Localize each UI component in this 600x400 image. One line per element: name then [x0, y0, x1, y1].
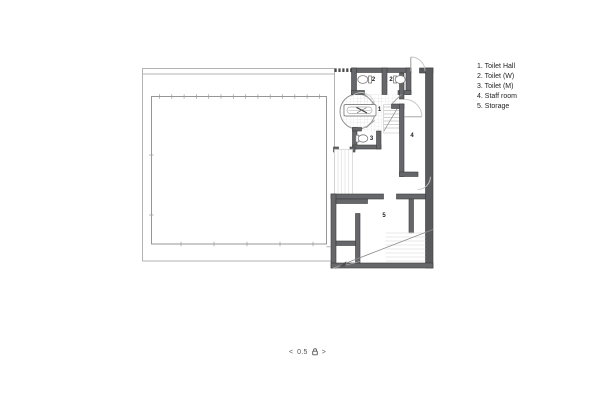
legend-item-storage: 5. Storage [477, 102, 517, 112]
lock-icon [312, 348, 318, 356]
legend-item-staff-room: 4. Staff room [477, 92, 517, 102]
legend: 1. Toilet Hall 2. Toilet (W) 3. Toilet (… [477, 62, 517, 112]
room-label-staff-room: 4 [410, 133, 413, 139]
room-label-toilet-w-right: 2 [389, 77, 392, 83]
floor-level-label: 0.5 [297, 349, 308, 356]
floor-plan-page: 1 2 2 3 4 5 1. Toilet Hall 2. Toilet (W)… [0, 0, 600, 400]
floor-pager: < 0.5 > [289, 348, 326, 356]
mullion-ticks [149, 94, 319, 246]
chevron-right-icon[interactable]: > [322, 349, 326, 356]
room-label-toilet-hall: 1 [378, 107, 381, 113]
floor-plan-drawing [0, 0, 600, 400]
legend-item-toilet-w: 2. Toilet (W) [477, 72, 517, 82]
storage-ramp [386, 233, 426, 261]
toilet-icon-m [356, 135, 368, 142]
main-hall [143, 69, 335, 262]
room-label-storage: 5 [382, 213, 385, 219]
sink-counter [344, 105, 376, 117]
legend-item-toilet-hall: 1. Toilet Hall [477, 62, 517, 72]
legend-item-toilet-m: 3. Toilet (M) [477, 82, 517, 92]
toilet-icon-w-left [358, 76, 372, 84]
room-label-toilet-m: 3 [370, 136, 373, 142]
chevron-left-icon[interactable]: < [289, 349, 293, 356]
toilet-icon-w-right [394, 76, 406, 84]
deck-band [335, 150, 353, 198]
room-label-toilet-w-left: 2 [372, 77, 375, 83]
